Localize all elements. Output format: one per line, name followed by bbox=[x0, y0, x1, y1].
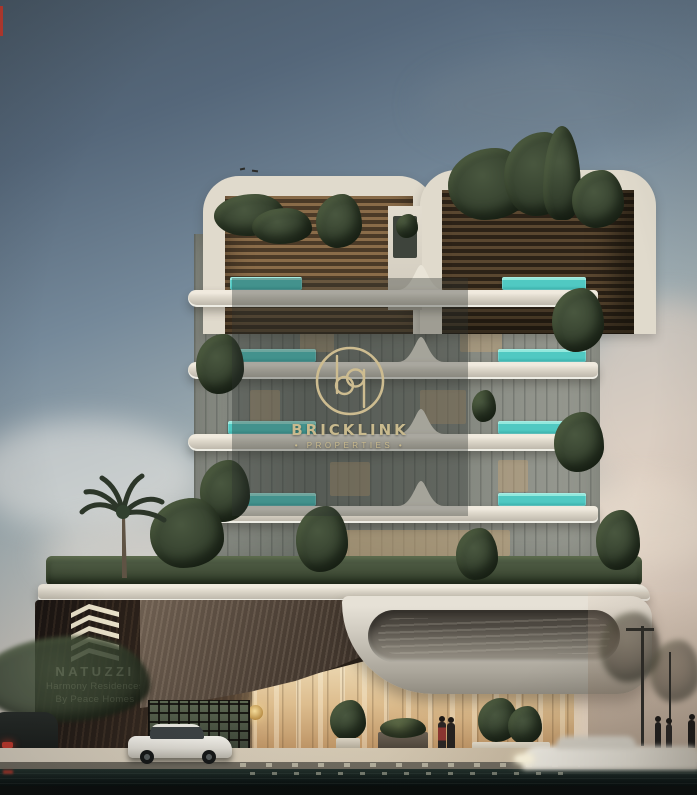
bird bbox=[240, 168, 245, 171]
white-sedan-car bbox=[128, 724, 232, 764]
pool-glass bbox=[498, 493, 586, 506]
wall-lamp bbox=[248, 705, 263, 720]
taillight-reflection bbox=[3, 770, 13, 774]
watermark-tagline: • PROPERTIES • bbox=[232, 441, 468, 450]
balcony-plant bbox=[472, 390, 496, 422]
garden-tree bbox=[596, 510, 640, 570]
haze-tree bbox=[650, 640, 697, 702]
watermark-overlay: BRICKLINK • PROPERTIES • bbox=[232, 278, 468, 516]
roof-tree bbox=[252, 208, 312, 244]
roof-tree bbox=[572, 170, 624, 228]
street-trees-left bbox=[0, 636, 150, 722]
watermark-brand: BRICKLINK bbox=[232, 421, 468, 439]
balcony-tree bbox=[554, 412, 604, 472]
car-body bbox=[522, 746, 697, 770]
roof-tree bbox=[396, 214, 418, 238]
red-edge-sliver bbox=[0, 6, 3, 36]
headlight-glow bbox=[514, 754, 534, 764]
car-cabin bbox=[556, 736, 636, 749]
palm-tree bbox=[78, 462, 168, 578]
planter-shrubs bbox=[380, 718, 426, 738]
roof-tree bbox=[316, 194, 362, 248]
car-cabin bbox=[150, 724, 204, 739]
opening-streaks bbox=[378, 618, 610, 654]
moving-white-car-blur bbox=[522, 736, 697, 776]
bottom-dark-strip bbox=[0, 786, 697, 795]
car-wheel bbox=[140, 750, 154, 764]
balcony-tree bbox=[552, 288, 604, 352]
street-pole bbox=[641, 626, 644, 746]
architectural-render-scene: NATUZZI Harmony Residences By Peace Home… bbox=[0, 0, 697, 795]
bird bbox=[252, 170, 258, 173]
street-pole-arm bbox=[626, 628, 654, 631]
bricklink-monogram-icon bbox=[313, 344, 387, 418]
garden-tree bbox=[456, 528, 498, 580]
pool-glass bbox=[502, 277, 586, 290]
entrance-tree bbox=[330, 700, 366, 740]
lit-window bbox=[498, 460, 528, 492]
car-wheel bbox=[202, 750, 216, 764]
